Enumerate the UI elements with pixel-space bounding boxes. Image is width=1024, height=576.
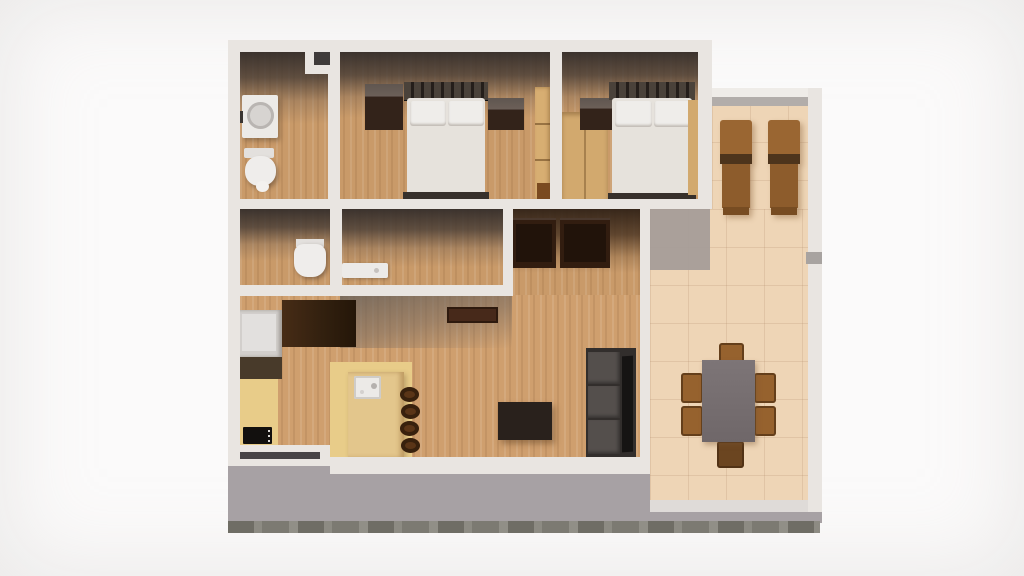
washing-machine-door-icon xyxy=(247,102,274,129)
washing-machine xyxy=(242,95,278,138)
dining-chair-right-1 xyxy=(754,373,776,403)
terrace-wall-pier xyxy=(806,252,822,264)
faucet-icon xyxy=(371,383,377,389)
drain-icon xyxy=(360,390,364,394)
toilet-2 xyxy=(294,239,326,279)
lounger-seat xyxy=(722,164,750,208)
bar-stool-4 xyxy=(401,438,420,453)
bed1-pillow-right xyxy=(448,101,484,126)
dining-table xyxy=(702,360,755,442)
dining-chair-left-2 xyxy=(681,406,703,436)
dining-chair-bottom xyxy=(717,441,744,468)
bed2-pillow-right xyxy=(654,101,691,127)
sofa xyxy=(586,348,636,458)
terrace-wall-bottom xyxy=(650,500,808,512)
sun-lounger-1 xyxy=(720,120,752,216)
tv-stand xyxy=(498,402,552,440)
toilet-1-base xyxy=(256,181,269,192)
stove-knob xyxy=(268,430,270,432)
wall-bath1-bed1 xyxy=(328,52,340,200)
kitchen-counter-left xyxy=(240,357,282,379)
shower-tray xyxy=(342,263,388,278)
closet-2-interior xyxy=(564,224,606,262)
hallway-closet-1 xyxy=(512,218,556,268)
sofa-backrest xyxy=(622,356,633,453)
stove-knob xyxy=(268,440,270,442)
toilet-2-bowl xyxy=(294,244,326,277)
wall-shelf xyxy=(447,307,498,323)
lounger-backrest xyxy=(720,120,752,155)
lounger-seat xyxy=(770,164,798,208)
wall-bath2-hall xyxy=(503,209,513,286)
stove xyxy=(243,427,272,444)
bar-stool-1 xyxy=(400,387,419,402)
bed1-pillow-left xyxy=(410,101,446,126)
outer-wall-bottom-right xyxy=(330,457,650,474)
shower-drain-icon xyxy=(374,268,379,273)
bar-stool-3 xyxy=(400,421,419,436)
bathroom2-shadow xyxy=(342,209,503,267)
sun-lounger-2 xyxy=(768,120,800,216)
bedroom1-nightstand-left xyxy=(365,96,403,130)
bedroom2-side-wardrobe xyxy=(688,100,698,195)
kitchen-corner-cabinet xyxy=(282,300,356,347)
bed2-pillow-left xyxy=(615,101,652,127)
wall-living-terrace xyxy=(640,209,650,474)
dining-chair-left-1 xyxy=(681,373,703,403)
ground-strip xyxy=(228,521,820,533)
fridge-top xyxy=(242,314,276,351)
terrace-building-shadow xyxy=(650,209,710,270)
bedroom1-nightstand-right xyxy=(488,109,524,130)
floor-plan-canvas xyxy=(0,0,1024,576)
terrace-wall-top xyxy=(712,97,808,106)
lounger-fold xyxy=(768,154,800,164)
lounger-footrest xyxy=(771,207,797,215)
wall-top-rooms-bottom xyxy=(228,199,712,209)
sink xyxy=(354,376,381,399)
closet-1-interior xyxy=(516,224,552,262)
lounger-footrest xyxy=(723,207,749,215)
bedroom2-bed xyxy=(608,82,696,204)
lounger-backrest xyxy=(768,120,800,155)
wall-bed1-bed2 xyxy=(550,52,562,200)
sofa-cushion xyxy=(588,352,620,384)
hallway-closet-2 xyxy=(560,218,610,268)
terrace-wall-right xyxy=(808,88,822,512)
chimney-block xyxy=(314,52,330,65)
bar-stool-2 xyxy=(401,404,420,419)
outer-wall-right xyxy=(698,40,712,209)
kitchen-window xyxy=(240,452,320,459)
wall-mid-rooms-bottom xyxy=(228,285,513,296)
sofa-cushion xyxy=(588,386,620,418)
fridge xyxy=(238,310,282,357)
outer-wall-top xyxy=(228,40,712,52)
lounger-fold xyxy=(720,154,752,164)
bedroom1-bed xyxy=(403,82,489,203)
stove-knob xyxy=(268,435,270,437)
terrace-wall-top-trim xyxy=(712,88,822,97)
outer-wall-left xyxy=(228,40,240,466)
wall-wc-bath2 xyxy=(330,209,342,286)
dining-chair-right-2 xyxy=(754,406,776,436)
kitchen-island xyxy=(348,372,404,458)
toilet-1 xyxy=(243,148,277,192)
sofa-cushion xyxy=(588,420,620,454)
